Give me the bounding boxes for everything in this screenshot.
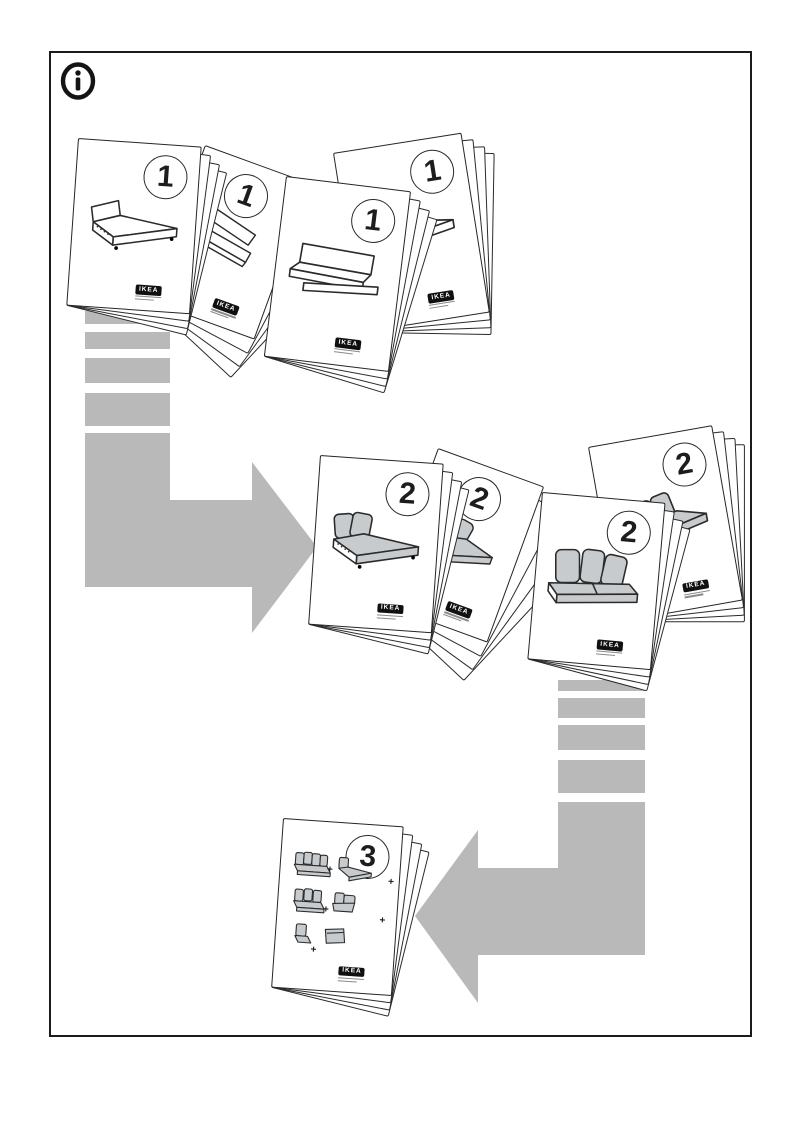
ikea-logo: IKEA — [377, 603, 410, 620]
info-icon — [58, 60, 98, 107]
logo-subtext-line — [338, 980, 357, 983]
booklet-step3-combinations: 3 + + + — [271, 818, 404, 996]
ikea-logo-text: IKEA — [338, 338, 358, 347]
chaise-frame-illustration — [76, 184, 193, 265]
step-number: 1 — [363, 205, 383, 237]
ikea-logo: IKEA — [443, 601, 478, 626]
ikea-logo: IKEA — [210, 298, 245, 323]
booklet-cover: 3 + + + — [271, 818, 404, 996]
booklet-cover: 2 IKEA — [308, 455, 444, 633]
plus-sign: + — [388, 877, 395, 888]
booklet-cover: 2 IKEA — [527, 492, 665, 670]
plus-sign: + — [310, 944, 317, 955]
ikea-logo: IKEA — [334, 337, 368, 356]
logo-subtext-line — [377, 617, 396, 620]
logo-subtext-line — [135, 298, 154, 301]
plus-sign: + — [327, 864, 334, 875]
ikea-logo-text: IKEA — [381, 604, 401, 612]
step-number: 2 — [673, 448, 695, 480]
booklet-cover: 1 IKEA — [264, 176, 411, 372]
step-number: 1 — [422, 155, 443, 187]
manual-page: { "page": { "background": "#ffffff", "fr… — [0, 0, 802, 1134]
logo-subtext-line — [596, 653, 615, 656]
booklet-step1-front-view: 1 IKEA — [264, 176, 411, 372]
ikea-logo-text: IKEA — [139, 285, 159, 293]
step-number: 2 — [398, 479, 417, 510]
ikea-logo: IKEA — [596, 639, 629, 657]
booklet-step2-chaise: 2 IKEA — [308, 455, 444, 633]
ikea-logo-text: IKEA — [600, 640, 620, 649]
ikea-logo: IKEA — [135, 284, 168, 301]
ikea-logo-text: IKEA — [342, 967, 362, 975]
booklet-cover: 1 IKEA — [66, 138, 201, 314]
step-number: 1 — [156, 162, 175, 193]
ikea-logo: IKEA — [428, 289, 462, 309]
sofa-frame-front-illustration — [276, 226, 399, 318]
plus-sign: + — [379, 915, 386, 926]
loveseat-cushions-illustration — [537, 538, 655, 621]
plus-sign: + — [323, 904, 330, 915]
ikea-logo: IKEA — [338, 966, 371, 983]
chaise-cushions-illustration — [317, 502, 434, 584]
ikea-logo-text: IKEA — [431, 291, 451, 301]
booklet-step1-chaise: 1 IKEA — [66, 138, 201, 314]
ikea-logo-text: IKEA — [686, 580, 706, 590]
sofa-combination-illustration — [282, 846, 392, 960]
ikea-logo: IKEA — [682, 578, 716, 598]
booklet-step2-loveseat: 2 IKEA — [527, 492, 665, 670]
step-number: 2 — [619, 517, 638, 548]
gray-arrow-down-left — [415, 675, 647, 1007]
